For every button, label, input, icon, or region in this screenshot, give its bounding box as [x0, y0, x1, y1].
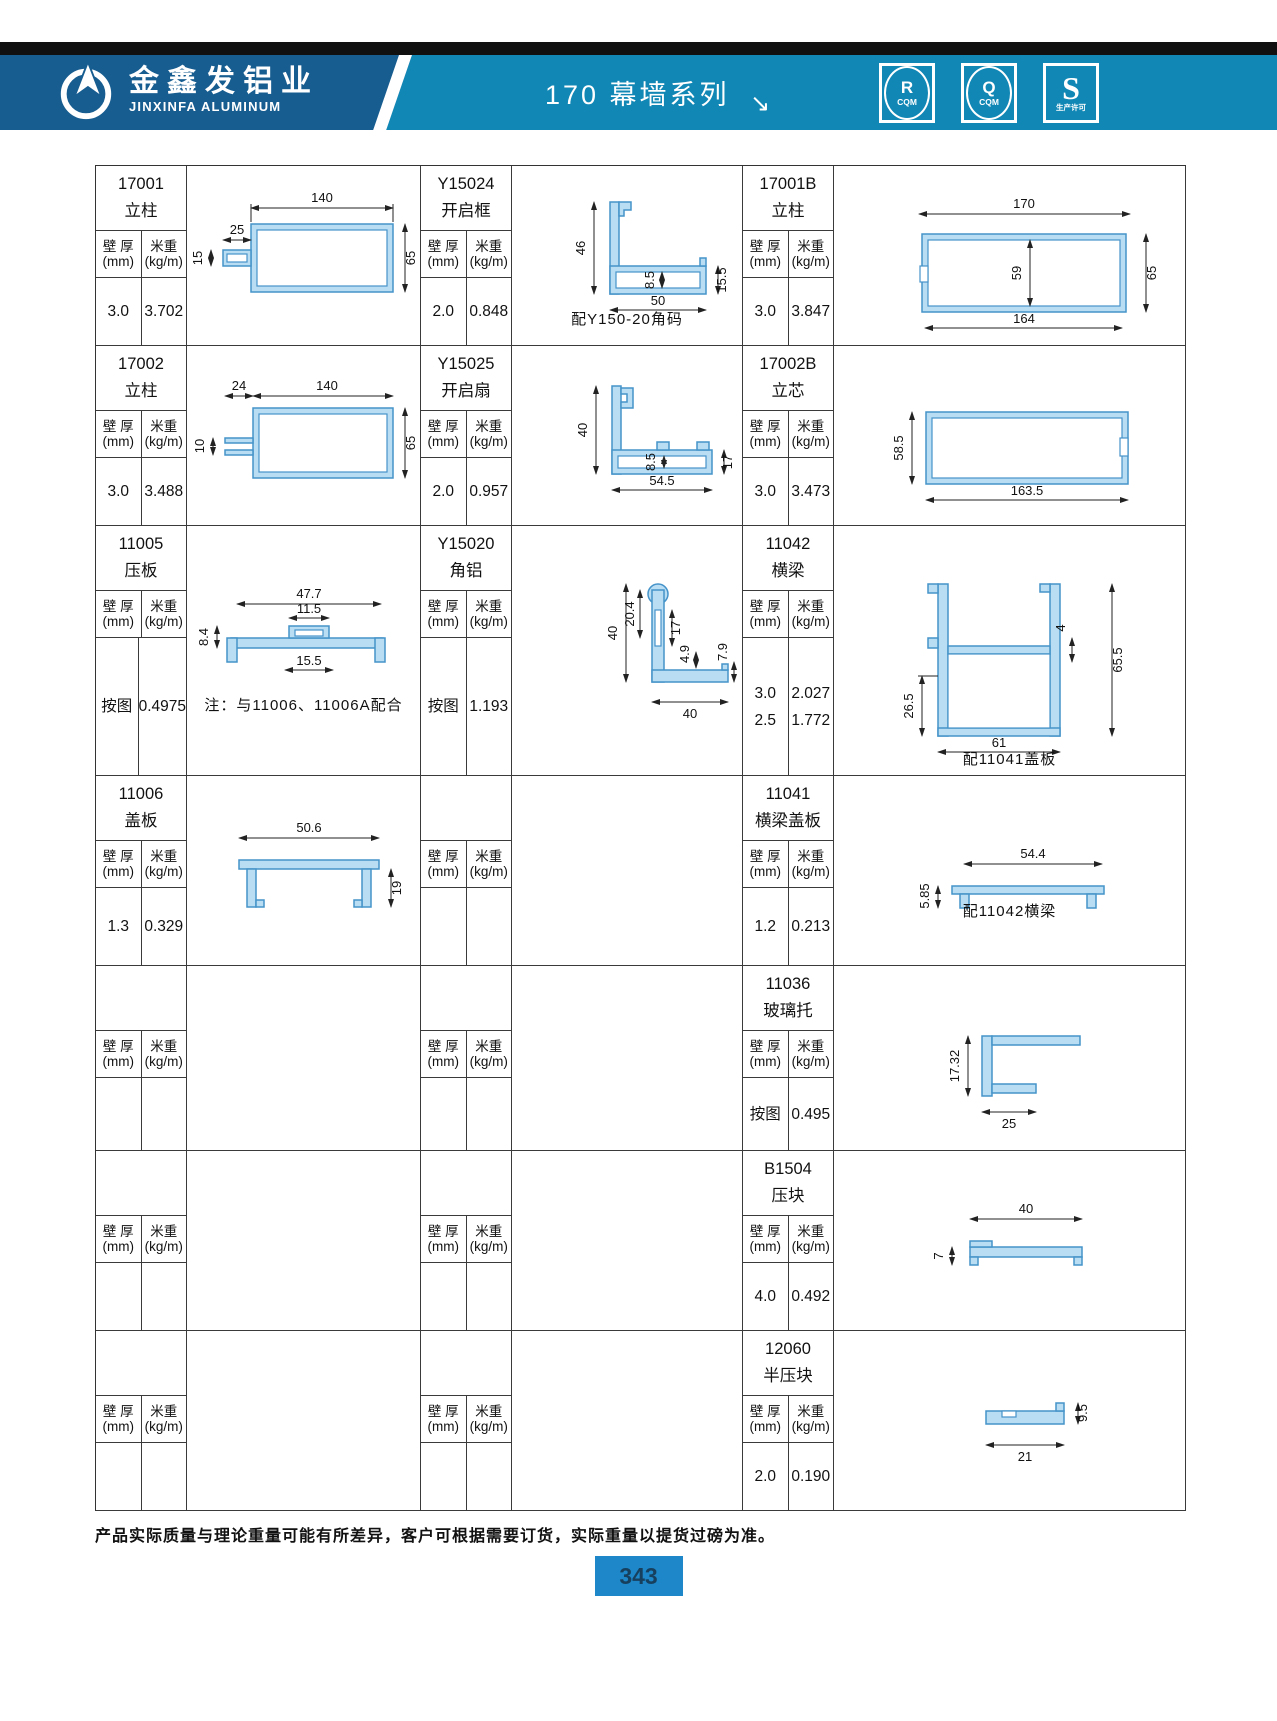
thickness-weight-header: 壁 厚(mm) 米重(kg/m) — [96, 1396, 186, 1443]
model-name: 横梁 — [772, 557, 805, 581]
model-number: Y15020 — [438, 535, 495, 554]
svg-text:58.5: 58.5 — [891, 435, 906, 460]
cell-Y15025-diagram: 40 8.5 54.5 17 — [512, 346, 743, 526]
cell-empty-diagram — [187, 1331, 421, 1511]
cell-11041-label: 11041横梁盖板 壁 厚(mm) 米重(kg/m) 1.20.213 — [743, 776, 834, 966]
thickness-weight-header: 壁 厚(mm) 米重(kg/m) — [421, 841, 511, 888]
svg-text:50: 50 — [651, 293, 665, 308]
thickness-weight-header: 壁 厚(mm) 米重(kg/m) — [743, 591, 833, 638]
wall-value: 按图 — [96, 638, 139, 775]
badge-q-cqm: Q CQM — [961, 63, 1017, 123]
cell-17002B-label: 17002B立芯 壁 厚(mm) 米重(kg/m) 3.03.473 — [743, 346, 834, 526]
svg-text:4: 4 — [1053, 624, 1068, 631]
pairing-note: 配11042横梁 — [834, 900, 1185, 921]
svg-text:25: 25 — [1002, 1116, 1016, 1131]
cell-12060-label: 12060半压块 壁 厚(mm) 米重(kg/m) 2.00.190 — [743, 1331, 834, 1511]
svg-text:54.4: 54.4 — [1020, 846, 1045, 861]
model-name: 横梁盖板 — [755, 807, 821, 831]
weight-value: 0.492 — [789, 1263, 834, 1330]
table-row: 11006盖板 壁 厚(mm) 米重(kg/m) 1.30.329 50.6 — [96, 776, 1186, 966]
weight-value: 0.213 — [789, 888, 834, 965]
svg-text:65.5: 65.5 — [1110, 647, 1125, 672]
thickness-weight-header: 壁 厚(mm) 米重(kg/m) — [743, 1396, 833, 1443]
svg-text:65: 65 — [403, 436, 418, 450]
weight-value: 0.329 — [142, 888, 187, 965]
svg-text:170: 170 — [1013, 196, 1035, 211]
weight-value: 0.495 — [789, 1078, 834, 1150]
weight-value: 3.488 — [142, 458, 187, 525]
weight-value: 0.190 — [789, 1443, 834, 1510]
cell-empty-diagram — [512, 1151, 743, 1331]
svg-text:26.5: 26.5 — [901, 693, 916, 718]
svg-text:40: 40 — [1019, 1201, 1033, 1216]
svg-text:8.4: 8.4 — [196, 628, 211, 646]
svg-text:24: 24 — [232, 378, 246, 393]
svg-text:9.5: 9.5 — [1075, 1404, 1090, 1422]
svg-text:21: 21 — [1018, 1449, 1032, 1464]
thickness-weight-header: 壁 厚(mm) 米重(kg/m) — [421, 411, 511, 458]
thickness-weight-header: 壁 厚(mm) 米重(kg/m) — [96, 841, 186, 888]
footer-disclaimer: 产品实际质量与理论重量可能有所差异，客户可根据需要订货，实际重量以提货过磅为准。 — [95, 1522, 775, 1546]
cell-11036-label: 11036玻璃托 壁 厚(mm) 米重(kg/m) 按图0.495 — [743, 966, 834, 1151]
wall-value: 3.0 — [743, 278, 789, 345]
profile-drawing-11036: 17.32 25 — [834, 966, 1186, 1150]
profile-drawing-B1504: 40 7 — [834, 1151, 1186, 1330]
cell-empty-label: 壁 厚(mm) 米重(kg/m) — [96, 1331, 187, 1511]
thickness-weight-header: 壁 厚(mm) 米重(kg/m) — [743, 841, 833, 888]
wall-value: 3.0 2.5 — [743, 638, 789, 775]
cell-17001-label: 17001立柱 壁 厚(mm) 米重(kg/m) 3.03.702 — [96, 166, 187, 346]
profile-drawing-17002: 24 140 10 65 — [187, 346, 421, 525]
cell-empty-label: 壁 厚(mm) 米重(kg/m) — [421, 966, 512, 1151]
svg-text:59: 59 — [1009, 266, 1024, 280]
model-number: 17001B — [760, 175, 817, 194]
thickness-weight-header: 壁 厚(mm) 米重(kg/m) — [743, 231, 833, 278]
cell-B1504-diagram: 40 7 — [834, 1151, 1186, 1331]
cell-17001B-diagram: 170 59 65 164 — [834, 166, 1186, 346]
model-name: 开启框 — [441, 197, 491, 221]
weight-value: 0.848 — [467, 278, 512, 345]
model-name: 半压块 — [763, 1362, 813, 1386]
cell-empty-diagram — [187, 1151, 421, 1331]
wall-value: 2.0 — [421, 278, 467, 345]
profile-drawing-Y15025: 40 8.5 54.5 17 — [512, 346, 743, 525]
svg-text:47.7: 47.7 — [296, 586, 321, 601]
thickness-weight-header: 壁 厚(mm) 米重(kg/m) — [743, 411, 833, 458]
svg-text:17.32: 17.32 — [947, 1050, 962, 1083]
weight-value: 1.193 — [467, 638, 512, 775]
profile-drawing-11042: 4 65.5 26.5 61 — [834, 526, 1186, 775]
cell-empty-label: 壁 厚(mm) 米重(kg/m) — [421, 1331, 512, 1511]
cell-empty-label: 壁 厚(mm) 米重(kg/m) — [96, 1151, 187, 1331]
cell-Y15024-diagram: 46 8.5 50 15.5 配Y150-20角码 — [512, 166, 743, 346]
table-row: 11005压板 壁 厚(mm) 米重(kg/m) 按图0.4975 47.7 — [96, 526, 1186, 776]
profile-drawing-11005: 47.7 11.5 8.4 15.5 — [187, 526, 421, 775]
thickness-weight-header: 壁 厚(mm) 米重(kg/m) — [421, 231, 511, 278]
svg-text:25: 25 — [230, 222, 244, 237]
model-number: Y15025 — [438, 355, 495, 374]
model-number: Y15024 — [438, 175, 495, 194]
cell-11036-diagram: 17.32 25 — [834, 966, 1186, 1151]
model-name: 压板 — [125, 557, 158, 581]
model-number: 11041 — [766, 785, 811, 804]
cell-Y15020-diagram: 40 20.4 17 4.9 7.9 40 — [512, 526, 743, 776]
wall-value: 1.2 — [743, 888, 789, 965]
wall-value: 3.0 — [743, 458, 789, 525]
thickness-weight-header: 壁 厚(mm) 米重(kg/m) — [421, 1031, 511, 1078]
thickness-weight-header: 壁 厚(mm) 米重(kg/m) — [96, 1031, 186, 1078]
cell-17001-diagram: 140 25 15 65 — [187, 166, 421, 346]
svg-text:15.5: 15.5 — [296, 653, 321, 668]
thickness-weight-header: 壁 厚(mm) 米重(kg/m) — [96, 591, 186, 638]
profile-drawing-11041: 54.4 5.85 — [834, 776, 1186, 965]
weight-value: 0.4975 — [139, 638, 186, 775]
table-row: 17002立柱 壁 厚(mm) 米重(kg/m) 3.03.488 24 140 — [96, 346, 1186, 526]
profile-drawing-17001: 140 25 15 65 — [187, 166, 421, 345]
brand-emblem-icon — [55, 60, 117, 122]
svg-text:65: 65 — [1144, 266, 1159, 280]
svg-text:65: 65 — [403, 251, 418, 265]
model-number: 17002B — [760, 355, 817, 374]
model-number: 11042 — [766, 535, 811, 554]
svg-text:163.5: 163.5 — [1011, 483, 1044, 498]
cell-11005-diagram: 47.7 11.5 8.4 15.5 注：与11006、11006A配合 — [187, 526, 421, 776]
cell-empty-diagram — [512, 776, 743, 966]
wall-value: 2.0 — [743, 1443, 789, 1510]
pairing-note: 注：与11006、11006A配合 — [187, 694, 420, 715]
model-name: 盖板 — [125, 807, 158, 831]
model-name: 压块 — [772, 1182, 805, 1206]
cell-empty-diagram — [512, 1331, 743, 1511]
cell-11042-diagram: 4 65.5 26.5 61 配11041盖板 — [834, 526, 1186, 776]
thickness-weight-header: 壁 厚(mm) 米重(kg/m) — [96, 1216, 186, 1263]
svg-text:4.9: 4.9 — [677, 645, 692, 663]
svg-text:7.9: 7.9 — [715, 643, 730, 661]
model-name: 立芯 — [772, 377, 805, 401]
thickness-weight-header: 壁 厚(mm) 米重(kg/m) — [421, 1396, 511, 1443]
table-row: 壁 厚(mm) 米重(kg/m) 壁 厚(mm) 米重(kg/m) 11036玻… — [96, 966, 1186, 1151]
thickness-weight-header: 壁 厚(mm) 米重(kg/m) — [421, 1216, 511, 1263]
model-number: 17002 — [118, 355, 164, 374]
pairing-note: 配Y150-20角码 — [512, 308, 742, 329]
svg-text:140: 140 — [311, 190, 333, 205]
cell-11041-diagram: 54.4 5.85 配11042横梁 — [834, 776, 1186, 966]
svg-text:7: 7 — [931, 1252, 946, 1259]
model-name: 立柱 — [125, 197, 158, 221]
profile-drawing-17001B: 170 59 65 164 — [834, 166, 1186, 345]
wall-value: 1.3 — [96, 888, 142, 965]
cell-empty-diagram — [187, 966, 421, 1151]
svg-text:46: 46 — [573, 241, 588, 255]
svg-text:10: 10 — [192, 439, 207, 453]
cell-empty-label: 壁 厚(mm) 米重(kg/m) — [421, 776, 512, 966]
pairing-note: 配11041盖板 — [834, 748, 1185, 769]
page-number: 343 — [595, 1556, 683, 1596]
diagonal-arrow-icon: ↘ — [750, 89, 770, 118]
model-name: 玻璃托 — [763, 997, 813, 1021]
cell-B1504-label: B1504压块 壁 厚(mm) 米重(kg/m) 4.00.492 — [743, 1151, 834, 1331]
table-row: 17001立柱 壁 厚(mm) 米重(kg/m) 3.03.702 140 — [96, 166, 1186, 346]
svg-text:140: 140 — [316, 378, 338, 393]
wall-value: 3.0 — [96, 278, 142, 345]
model-number: 11036 — [766, 975, 811, 994]
svg-text:15.5: 15.5 — [714, 267, 729, 292]
brand-name-cn: 金鑫发铝业 — [129, 66, 319, 98]
badge-production-license: S 生产许可 — [1043, 63, 1099, 123]
svg-text:40: 40 — [683, 706, 697, 721]
svg-text:20.4: 20.4 — [622, 601, 637, 626]
model-number: 11005 — [119, 535, 164, 554]
cell-Y15020-label: Y15020角铝 壁 厚(mm) 米重(kg/m) 按图1.193 — [421, 526, 512, 776]
brand-logo: 金鑫发铝业 JINXINFA ALUMINUM — [55, 60, 319, 122]
thickness-weight-header: 壁 厚(mm) 米重(kg/m) — [743, 1216, 833, 1263]
thickness-weight-header: 壁 厚(mm) 米重(kg/m) — [96, 231, 186, 278]
profile-drawing-Y15020: 40 20.4 17 4.9 7.9 40 — [512, 526, 743, 775]
cell-empty-diagram — [512, 966, 743, 1151]
table-row: 壁 厚(mm) 米重(kg/m) 壁 厚(mm) 米重(kg/m) 12060半… — [96, 1331, 1186, 1511]
svg-text:8.5: 8.5 — [643, 453, 658, 471]
svg-text:19: 19 — [389, 881, 404, 895]
wall-value: 按图 — [421, 638, 467, 775]
weight-value: 3.702 — [142, 278, 187, 345]
model-number: 12060 — [765, 1340, 811, 1359]
cell-empty-label: 壁 厚(mm) 米重(kg/m) — [96, 966, 187, 1151]
cell-17002-label: 17002立柱 壁 厚(mm) 米重(kg/m) 3.03.488 — [96, 346, 187, 526]
weight-value: 0.957 — [467, 458, 512, 525]
cell-11006-label: 11006盖板 壁 厚(mm) 米重(kg/m) 1.30.329 — [96, 776, 187, 966]
model-name: 角铝 — [450, 557, 483, 581]
model-number: 17001 — [118, 175, 164, 194]
page-header: 金鑫发铝业 JINXINFA ALUMINUM 170 幕墙系列 ↘ R CQM… — [0, 55, 1277, 130]
svg-text:164: 164 — [1013, 311, 1035, 326]
table-row: 壁 厚(mm) 米重(kg/m) 壁 厚(mm) 米重(kg/m) B1504压… — [96, 1151, 1186, 1331]
thickness-weight-header: 壁 厚(mm) 米重(kg/m) — [421, 591, 511, 638]
svg-text:17: 17 — [668, 621, 683, 635]
wall-value: 4.0 — [743, 1263, 789, 1330]
wall-value: 2.0 — [421, 458, 467, 525]
wall-value: 3.0 — [96, 458, 142, 525]
cell-11005-label: 11005压板 壁 厚(mm) 米重(kg/m) 按图0.4975 — [96, 526, 187, 776]
cell-Y15024-label: Y15024开启框 壁 厚(mm) 米重(kg/m) 2.00.848 — [421, 166, 512, 346]
weight-value: 3.473 — [789, 458, 834, 525]
cell-17002B-diagram: 58.5 163.5 — [834, 346, 1186, 526]
svg-text:8.5: 8.5 — [642, 271, 657, 289]
top-rule — [0, 42, 1277, 55]
profile-drawing-17002B: 58.5 163.5 — [834, 346, 1186, 525]
cell-12060-diagram: 21 9.5 — [834, 1331, 1186, 1511]
model-name: 立柱 — [125, 377, 158, 401]
cell-17001B-label: 17001B立柱 壁 厚(mm) 米重(kg/m) 3.03.847 — [743, 166, 834, 346]
profile-table: 17001立柱 壁 厚(mm) 米重(kg/m) 3.03.702 140 — [95, 165, 1186, 1511]
profile-drawing-12060: 21 9.5 — [834, 1331, 1186, 1510]
svg-text:17: 17 — [720, 455, 735, 469]
cell-Y15025-label: Y15025开启扇 壁 厚(mm) 米重(kg/m) 2.00.957 — [421, 346, 512, 526]
model-name: 立柱 — [772, 197, 805, 221]
weight-value: 2.027 1.772 — [789, 638, 834, 775]
catalog-page: 金鑫发铝业 JINXINFA ALUMINUM 170 幕墙系列 ↘ R CQM… — [0, 0, 1277, 1721]
cell-17002-diagram: 24 140 10 65 — [187, 346, 421, 526]
profile-drawing-11006: 50.6 19 — [187, 776, 421, 965]
svg-text:40: 40 — [575, 423, 590, 437]
model-name: 开启扇 — [441, 377, 491, 401]
brand-name-en: JINXINFA ALUMINUM — [129, 98, 319, 116]
svg-text:11.5: 11.5 — [297, 601, 321, 616]
svg-text:54.5: 54.5 — [649, 473, 674, 488]
wall-value: 按图 — [743, 1078, 789, 1150]
model-number: 11006 — [119, 785, 164, 804]
badge-r-cqm: R CQM — [879, 63, 935, 123]
thickness-weight-header: 壁 厚(mm) 米重(kg/m) — [96, 411, 186, 458]
thickness-weight-header: 壁 厚(mm) 米重(kg/m) — [743, 1031, 833, 1078]
weight-value: 3.847 — [789, 278, 834, 345]
model-number: B1504 — [764, 1160, 812, 1179]
cell-11006-diagram: 50.6 19 — [187, 776, 421, 966]
svg-text:40: 40 — [605, 626, 620, 640]
svg-text:50.6: 50.6 — [296, 820, 321, 835]
svg-text:15: 15 — [190, 251, 205, 265]
series-title: 170 幕墙系列 — [545, 55, 730, 130]
cell-11042-label: 11042横梁 壁 厚(mm) 米重(kg/m) 3.0 2.52.027 1.… — [743, 526, 834, 776]
certification-badges: R CQM Q CQM S 生产许可 — [879, 63, 1099, 123]
cell-empty-label: 壁 厚(mm) 米重(kg/m) — [421, 1151, 512, 1331]
